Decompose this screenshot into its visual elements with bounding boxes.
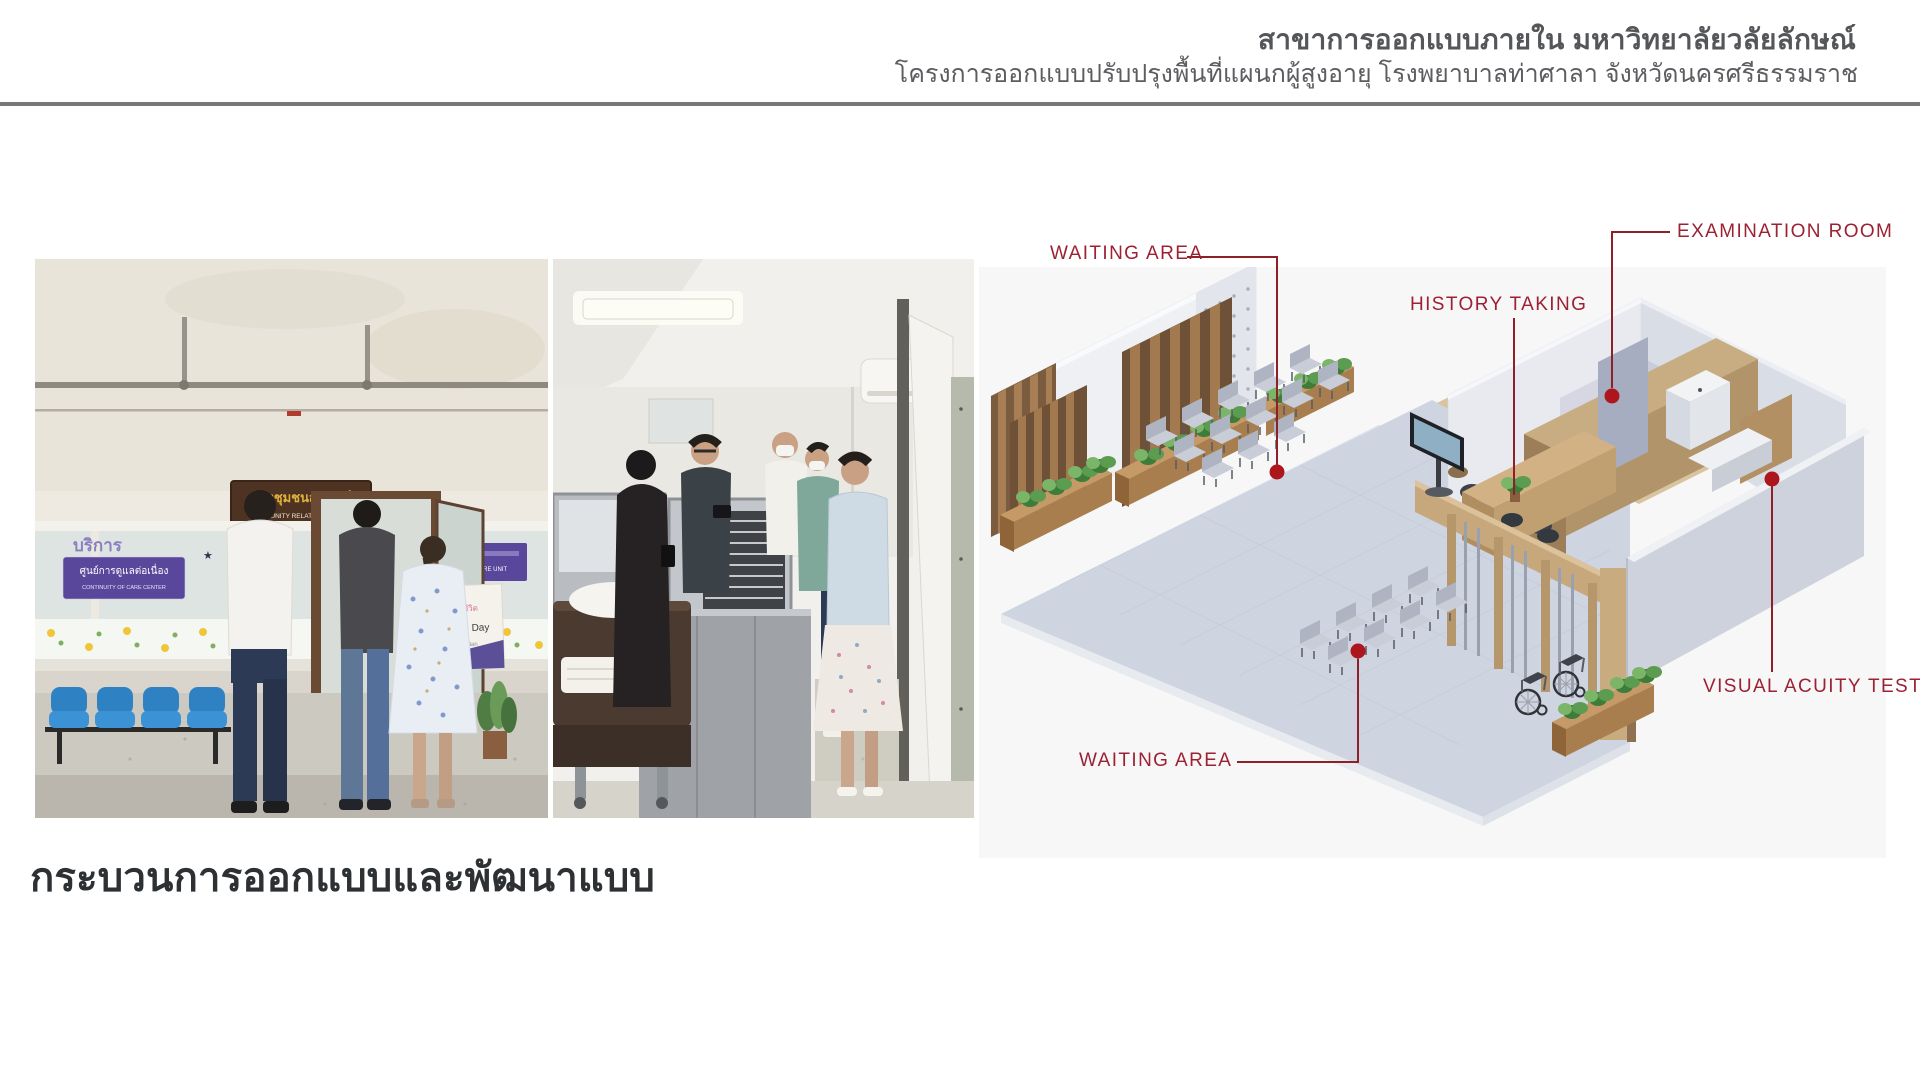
label-waiting-area-top: WAITING AREA — [1050, 243, 1203, 265]
star-decal: ★ — [203, 550, 213, 562]
site-photo-interior — [553, 259, 974, 818]
label-waiting-area-bottom: WAITING AREA — [1079, 750, 1232, 772]
care-center-sign: ศูนย์การดูแลต่อเนื่อง CONTINUITY OF CARE… — [63, 557, 185, 599]
svg-text:CONTINUITY OF CARE CENTER: CONTINUITY OF CARE CENTER — [82, 585, 166, 591]
glass-service-text: บริการ — [73, 536, 123, 555]
label-visual-acuity-test: VISUAL ACUITY TEST — [1703, 676, 1920, 698]
label-history-taking: HISTORY TAKING — [1410, 294, 1587, 316]
header-project: โครงการออกแบบปรับปรุงพื้นที่แผนกผู้สูงอา… — [895, 54, 1858, 94]
site-photo-waiting-area: ห้องชุมชนสัมพันธ์ COMMUNITY RELATION CEN… — [35, 259, 548, 818]
slide: สาขาการออกแบบภายใน มหาวิทยาลัยวลัยลักษณ์… — [0, 0, 1920, 1080]
photo1-illustration: ห้องชุมชนสัมพันธ์ COMMUNITY RELATION CEN… — [35, 259, 548, 818]
section-title: กระบวนการออกแบบและพัฒนาแบบ — [30, 845, 655, 909]
person-dark-shirt — [339, 500, 395, 810]
svg-text:ศูนย์การดูแลต่อเนื่อง: ศูนย์การดูแลต่อเนื่อง — [80, 563, 169, 577]
header-divider — [0, 102, 1920, 106]
label-examination-room: EXAMINATION ROOM — [1677, 221, 1893, 243]
photo2-illustration — [553, 259, 974, 818]
